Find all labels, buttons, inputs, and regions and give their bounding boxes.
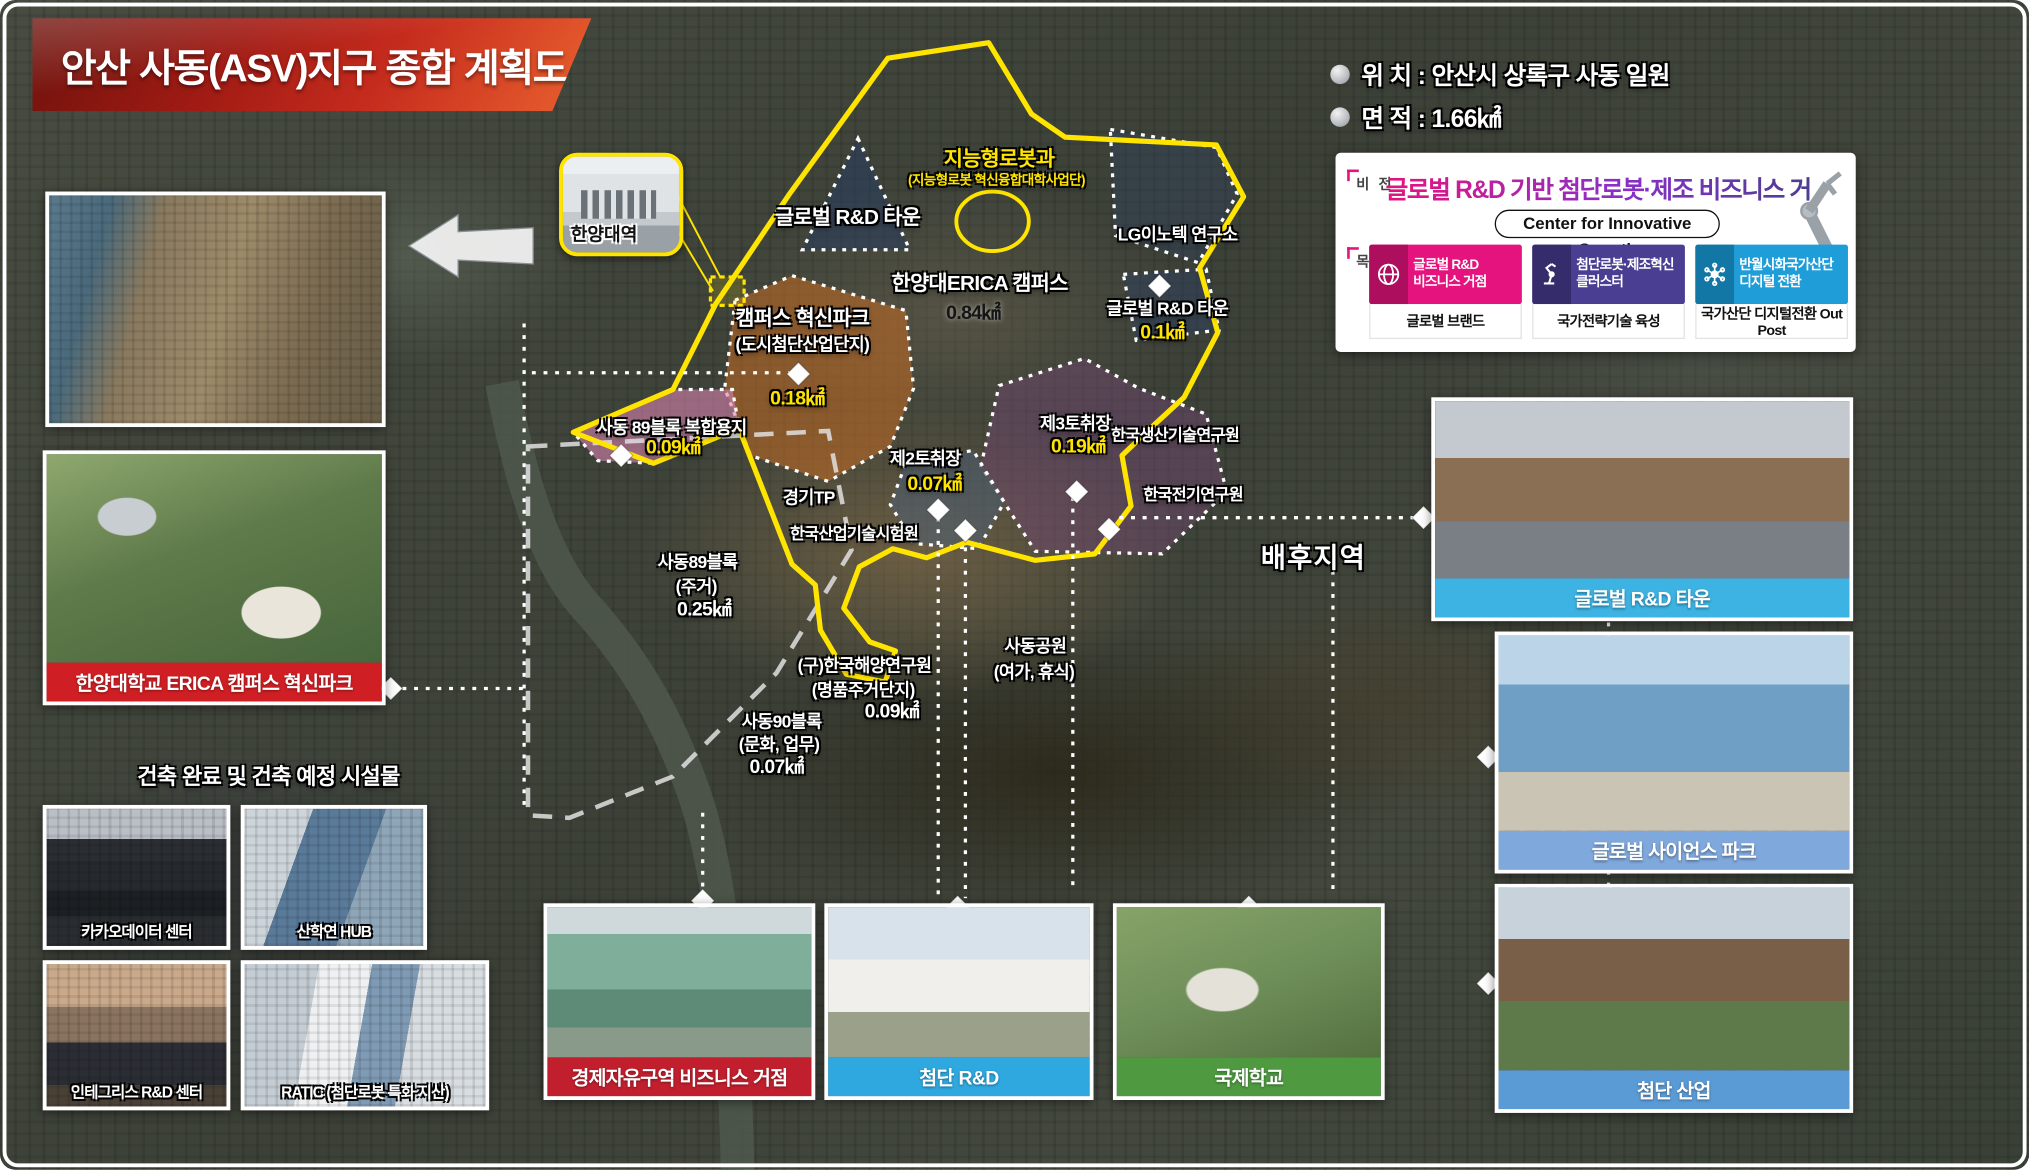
location-row: 위 치 : 안산시 상록구 사동 일원 <box>1330 57 1669 92</box>
map-label: 지능형로봇과 <box>944 141 1054 172</box>
map-label: (여가, 휴식) <box>994 657 1074 683</box>
goal-head: 반월시화국가산단디지털 전환 <box>1695 245 1848 305</box>
right-card: 첨단 산업 <box>1495 884 1853 1113</box>
facility-label: 카카오데이터 센터 <box>47 920 227 942</box>
map-label: 한국생산기술연구원 <box>1111 421 1239 446</box>
right-card: 글로벌 사이언스 파크 <box>1495 632 1853 874</box>
map-label: (지능형로봇 혁신융합대학사업단) <box>908 170 1085 189</box>
map-label: 배후지역 <box>1261 537 1366 576</box>
bottom-card: 국제학교 <box>1113 903 1385 1100</box>
card-caption: 첨단 R&D <box>828 1057 1089 1096</box>
photo <box>1435 401 1849 578</box>
facility-label: 산학연 HUB <box>245 920 424 942</box>
info-block: 위 치 : 안산시 상록구 사동 일원 면 적 : 1.66㎢ <box>1330 57 1669 142</box>
facility-card: 산학연 HUB <box>241 805 427 950</box>
facility-label: RATIC (첨단로봇 특화 지산) <box>245 1081 486 1103</box>
map-label: 0.84㎢ <box>946 298 1000 325</box>
facility-card: 카카오데이터 센터 <box>43 805 231 950</box>
area-value: 1.66㎢ <box>1431 106 1500 133</box>
map-label: 0.07㎢ <box>749 753 803 780</box>
map-label: 한양대ERICA 캠퍼스 <box>892 265 1068 296</box>
map-label: 0.07㎢ <box>907 469 961 496</box>
facilities-title: 건축 완료 및 건축 예정 시설물 <box>45 758 491 790</box>
map-label: 경기TP <box>783 483 835 509</box>
bullet-icon <box>1330 65 1349 84</box>
card-caption: 첨단 산업 <box>1499 1070 1850 1109</box>
goal-card-global-rnd: 글로벌 R&D비즈니스 거점 글로벌 브랜드 <box>1369 245 1522 339</box>
right-card: 글로벌 R&D 타운 <box>1431 397 1853 621</box>
photo <box>1117 907 1381 1057</box>
map-label: LG이노텍 연구소 <box>1118 220 1238 246</box>
erica-innovation-park-card: 한양대학교 ERICA 캠퍼스 혁신파크 <box>43 450 386 705</box>
map-label: 0.1㎢ <box>1140 318 1184 345</box>
map-label: (도시첨단산업단지) <box>735 330 869 356</box>
bullet-icon <box>1330 107 1349 126</box>
card-caption: 글로벌 사이언스 파크 <box>1499 831 1850 870</box>
location-label: 위 치 : <box>1361 63 1425 90</box>
goal-sub: 국가산단 디지털전환 Out Post <box>1695 304 1848 339</box>
hanyang-station-callout: 한양대역 <box>559 153 683 257</box>
goal-cards: 글로벌 R&D비즈니스 거점 글로벌 브랜드 첨단로봇·제조혁신클러스터 국가전… <box>1369 245 1879 339</box>
map-label: 0.25㎢ <box>677 595 731 622</box>
goal-sub: 글로벌 브랜드 <box>1369 304 1522 339</box>
facility-label: 인테그리스 R&D 센터 <box>47 1081 227 1103</box>
goal-card-digital-transition: 반월시화국가산단디지털 전환 국가산단 디지털전환 Out Post <box>1695 245 1848 339</box>
bottom-card: 첨단 R&D <box>824 903 1093 1100</box>
facility-card: 인테그리스 R&D 센터 <box>43 960 231 1110</box>
network-icon <box>1695 245 1734 305</box>
map-label: 0.09㎢ <box>646 433 700 460</box>
map-label: 사동공원 <box>1004 632 1066 658</box>
card-caption: 국제학교 <box>1117 1057 1381 1096</box>
map-label: 글로벌 R&D 타운 <box>1107 294 1228 320</box>
vision-box: 비 전 목 표 글로벌 R&D 기반 첨단로봇·제조 비즈니스 거점 Cente… <box>1336 153 1856 352</box>
vision-subtitle: Center for Innovative Growth <box>1495 210 1720 238</box>
photo <box>547 907 811 1057</box>
robot-arm-icon <box>1532 245 1571 305</box>
photo <box>1499 888 1850 1070</box>
map-label: 0.18㎢ <box>770 384 824 411</box>
card-caption: 경제자유구역 비즈니스 거점 <box>547 1057 811 1096</box>
map-label: 0.09㎢ <box>865 697 919 724</box>
area-row: 면 적 : 1.66㎢ <box>1330 100 1669 135</box>
card-caption: 한양대학교 ERICA 캠퍼스 혁신파크 <box>47 663 382 702</box>
map-label: 한국전기연구원 <box>1143 481 1243 506</box>
goal-head: 첨단로봇·제조혁신클러스터 <box>1532 245 1685 305</box>
globe-icon <box>1369 245 1408 305</box>
card-caption: 글로벌 R&D 타운 <box>1435 578 1849 617</box>
goal-card-robot-cluster: 첨단로봇·제조혁신클러스터 국가전략기술 육성 <box>1532 245 1685 339</box>
map-label: 제2토취장 <box>890 444 961 470</box>
page-title: 안산 사동(ASV)지구 종합 계획도 <box>61 36 567 93</box>
bottom-card: 경제자유구역 비즈니스 거점 <box>544 903 816 1100</box>
map-label: 사동90블록 <box>742 707 822 733</box>
map-label: (구)한국해양연구원 <box>798 651 932 677</box>
photo <box>47 454 382 662</box>
map-label: 한국산업기술시험원 <box>790 520 918 545</box>
map-label: 사동89블록 <box>658 547 738 573</box>
goal-head: 글로벌 R&D비즈니스 거점 <box>1369 245 1522 305</box>
location-value: 안산시 상록구 사동 일원 <box>1431 63 1669 90</box>
plan-map-poster: 지능형로봇과(지능형로봇 혁신융합대학사업단)글로벌 R&D 타운LG이노텍 연… <box>0 0 2029 1170</box>
photo <box>1499 635 1850 830</box>
photo-texture <box>49 195 382 423</box>
facility-card: RATIC (첨단로봇 특화 지산) <box>241 960 489 1110</box>
goal-sub: 국가전략기술 육성 <box>1532 304 1685 339</box>
map-label: 캠퍼스 혁신파크 <box>735 300 869 331</box>
station-label: 한양대역 <box>571 221 638 247</box>
area-label: 면 적 : <box>1361 106 1425 133</box>
map-label: 글로벌 R&D 타운 <box>775 199 920 230</box>
title-banner: 안산 사동(ASV)지구 종합 계획도 <box>32 18 591 111</box>
map-label: 0.19㎢ <box>1051 432 1105 459</box>
photo <box>828 907 1089 1057</box>
aerial-industrial-photo <box>45 192 385 428</box>
